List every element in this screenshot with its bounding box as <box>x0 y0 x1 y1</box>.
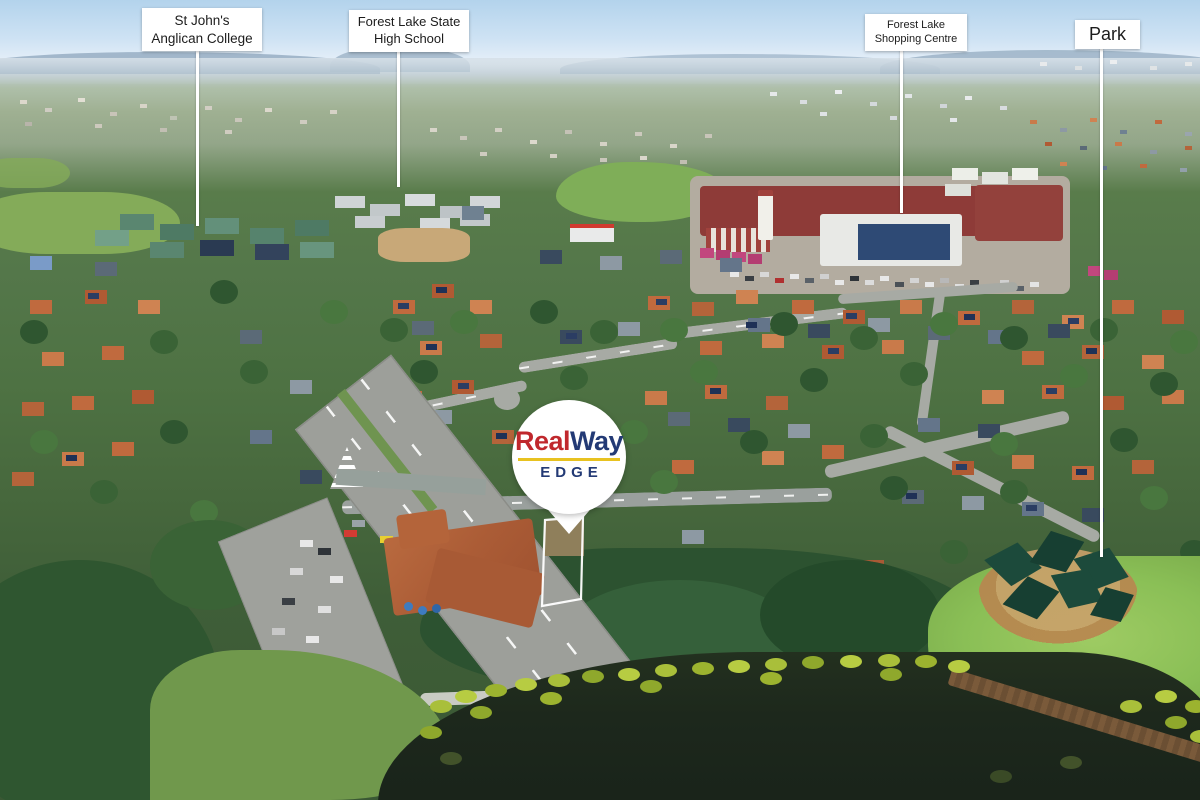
pointer-line-shopping-centre <box>900 41 903 213</box>
sports-field <box>0 158 70 188</box>
logo-underline <box>518 458 620 461</box>
suburb-street <box>824 410 1071 479</box>
label-text: Forest Lake <box>873 18 959 32</box>
deck-umbrellas <box>404 602 413 611</box>
label-text: St John's <box>150 12 254 30</box>
label-text: High School <box>357 31 461 48</box>
aerial-photo: St John's Anglican College Forest Lake S… <box>0 0 1200 800</box>
cul-de-sac <box>494 388 520 410</box>
park-street <box>882 424 1101 544</box>
sports-field <box>0 192 180 254</box>
lily-pads <box>0 0 22 13</box>
realway-wordmark: RealWay <box>512 428 626 455</box>
logo-word-way: Way <box>570 426 623 456</box>
label-text: Forest Lake State <box>357 14 461 31</box>
logo-tagline: EDGE <box>512 465 626 480</box>
suburb-street <box>916 288 945 428</box>
label-shopping-centre: Forest Lake Shopping Centre <box>865 14 967 51</box>
label-text: Anglican College <box>150 30 254 48</box>
clock-tower <box>758 190 773 240</box>
shopping-centre-roof <box>975 185 1063 241</box>
suburb-street <box>518 338 678 374</box>
logo-word-real: Real <box>515 426 570 456</box>
dirt-patch <box>378 228 470 262</box>
petrol-station <box>570 224 614 242</box>
tavern-roof-entry <box>396 509 450 550</box>
label-high-school: Forest Lake State High School <box>349 10 469 52</box>
label-text: Park <box>1089 23 1126 46</box>
pointer-line-st-johns <box>196 46 199 226</box>
realway-logo: RealWay EDGE <box>512 428 626 480</box>
label-park: Park <box>1075 20 1140 49</box>
label-st-johns: St John's Anglican College <box>142 8 262 51</box>
label-text: Shopping Centre <box>873 32 959 46</box>
horizon-haze <box>0 58 1200 84</box>
pointer-line-park <box>1100 41 1103 557</box>
suburb-street <box>668 307 848 340</box>
pointer-line-high-school <box>397 46 400 187</box>
rooftop-solar-panels <box>858 224 950 260</box>
